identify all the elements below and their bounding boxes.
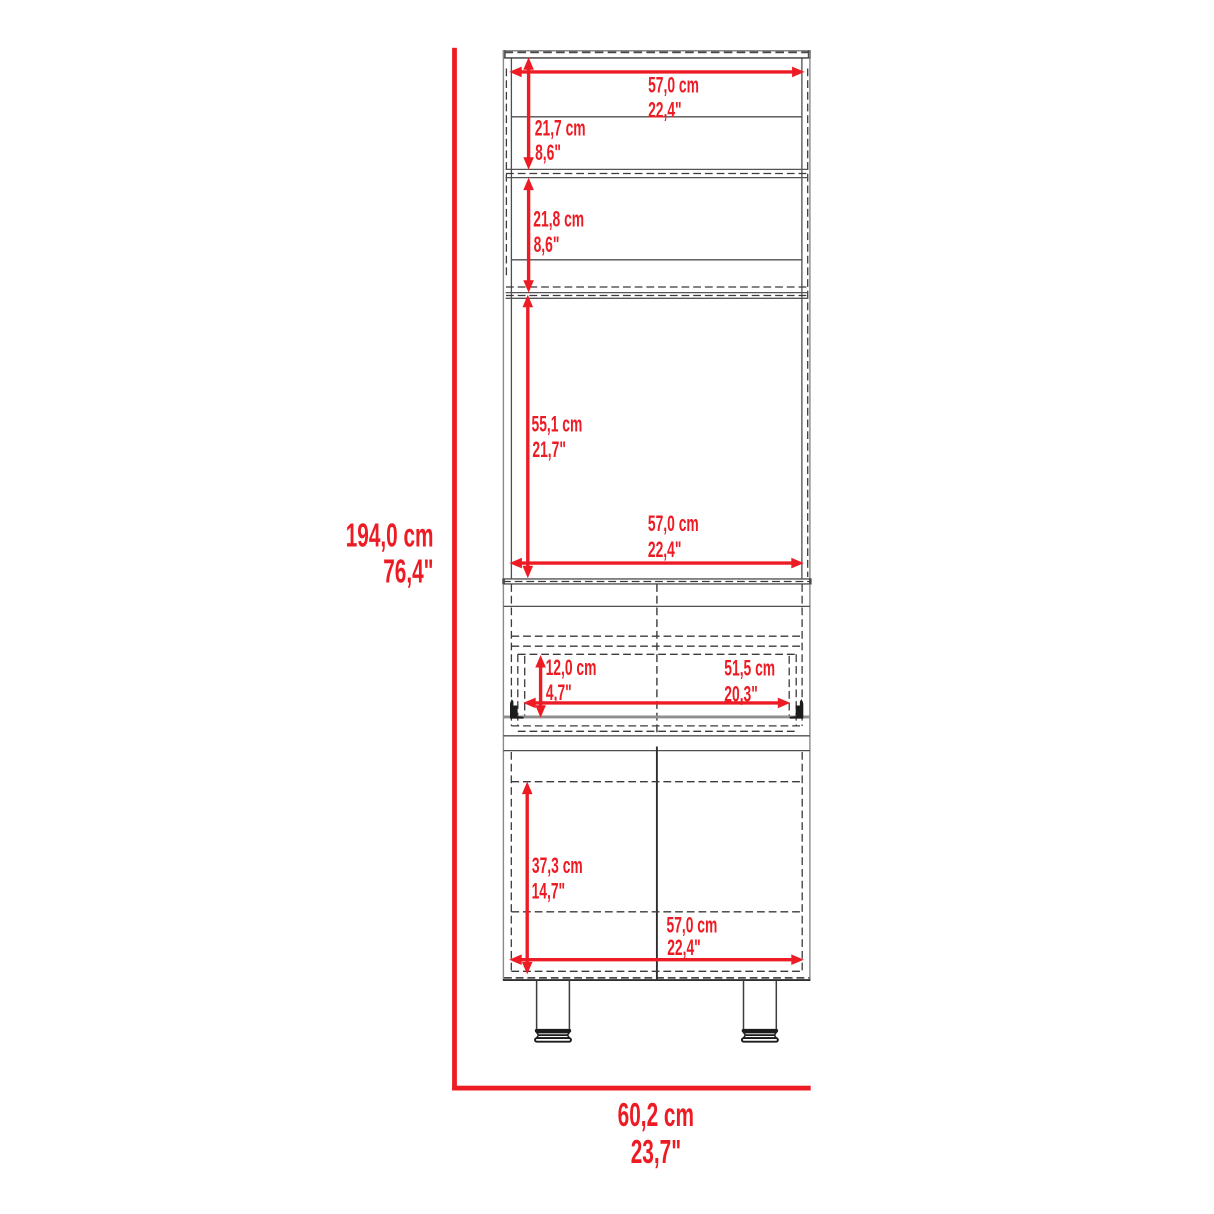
svg-text:12,0 cm: 12,0 cm (546, 655, 597, 680)
svg-text:51,5 cm: 51,5 cm (724, 655, 775, 680)
svg-text:14,7": 14,7" (532, 878, 566, 903)
svg-text:57,0 cm: 57,0 cm (648, 72, 699, 97)
svg-text:20,3": 20,3" (724, 681, 758, 706)
svg-text:55,1 cm: 55,1 cm (532, 411, 583, 436)
svg-text:194,0 cm: 194,0 cm (346, 516, 434, 553)
svg-text:76,4": 76,4" (383, 553, 433, 590)
svg-text:4,7": 4,7" (546, 680, 572, 705)
svg-text:8,6": 8,6" (535, 140, 561, 165)
svg-text:22,4": 22,4" (648, 97, 682, 122)
svg-text:22,4": 22,4" (667, 935, 701, 960)
svg-text:21,7": 21,7" (532, 437, 566, 462)
svg-text:23,7": 23,7" (631, 1133, 681, 1170)
svg-text:37,3 cm: 37,3 cm (532, 853, 583, 878)
svg-text:8,6": 8,6" (534, 232, 560, 257)
svg-text:60,2 cm: 60,2 cm (618, 1096, 694, 1133)
svg-text:21,7 cm: 21,7 cm (535, 115, 586, 140)
svg-text:21,8 cm: 21,8 cm (533, 206, 584, 231)
svg-text:57,0 cm: 57,0 cm (648, 511, 699, 536)
svg-text:57,0 cm: 57,0 cm (667, 912, 718, 937)
svg-text:22,4": 22,4" (648, 537, 682, 562)
